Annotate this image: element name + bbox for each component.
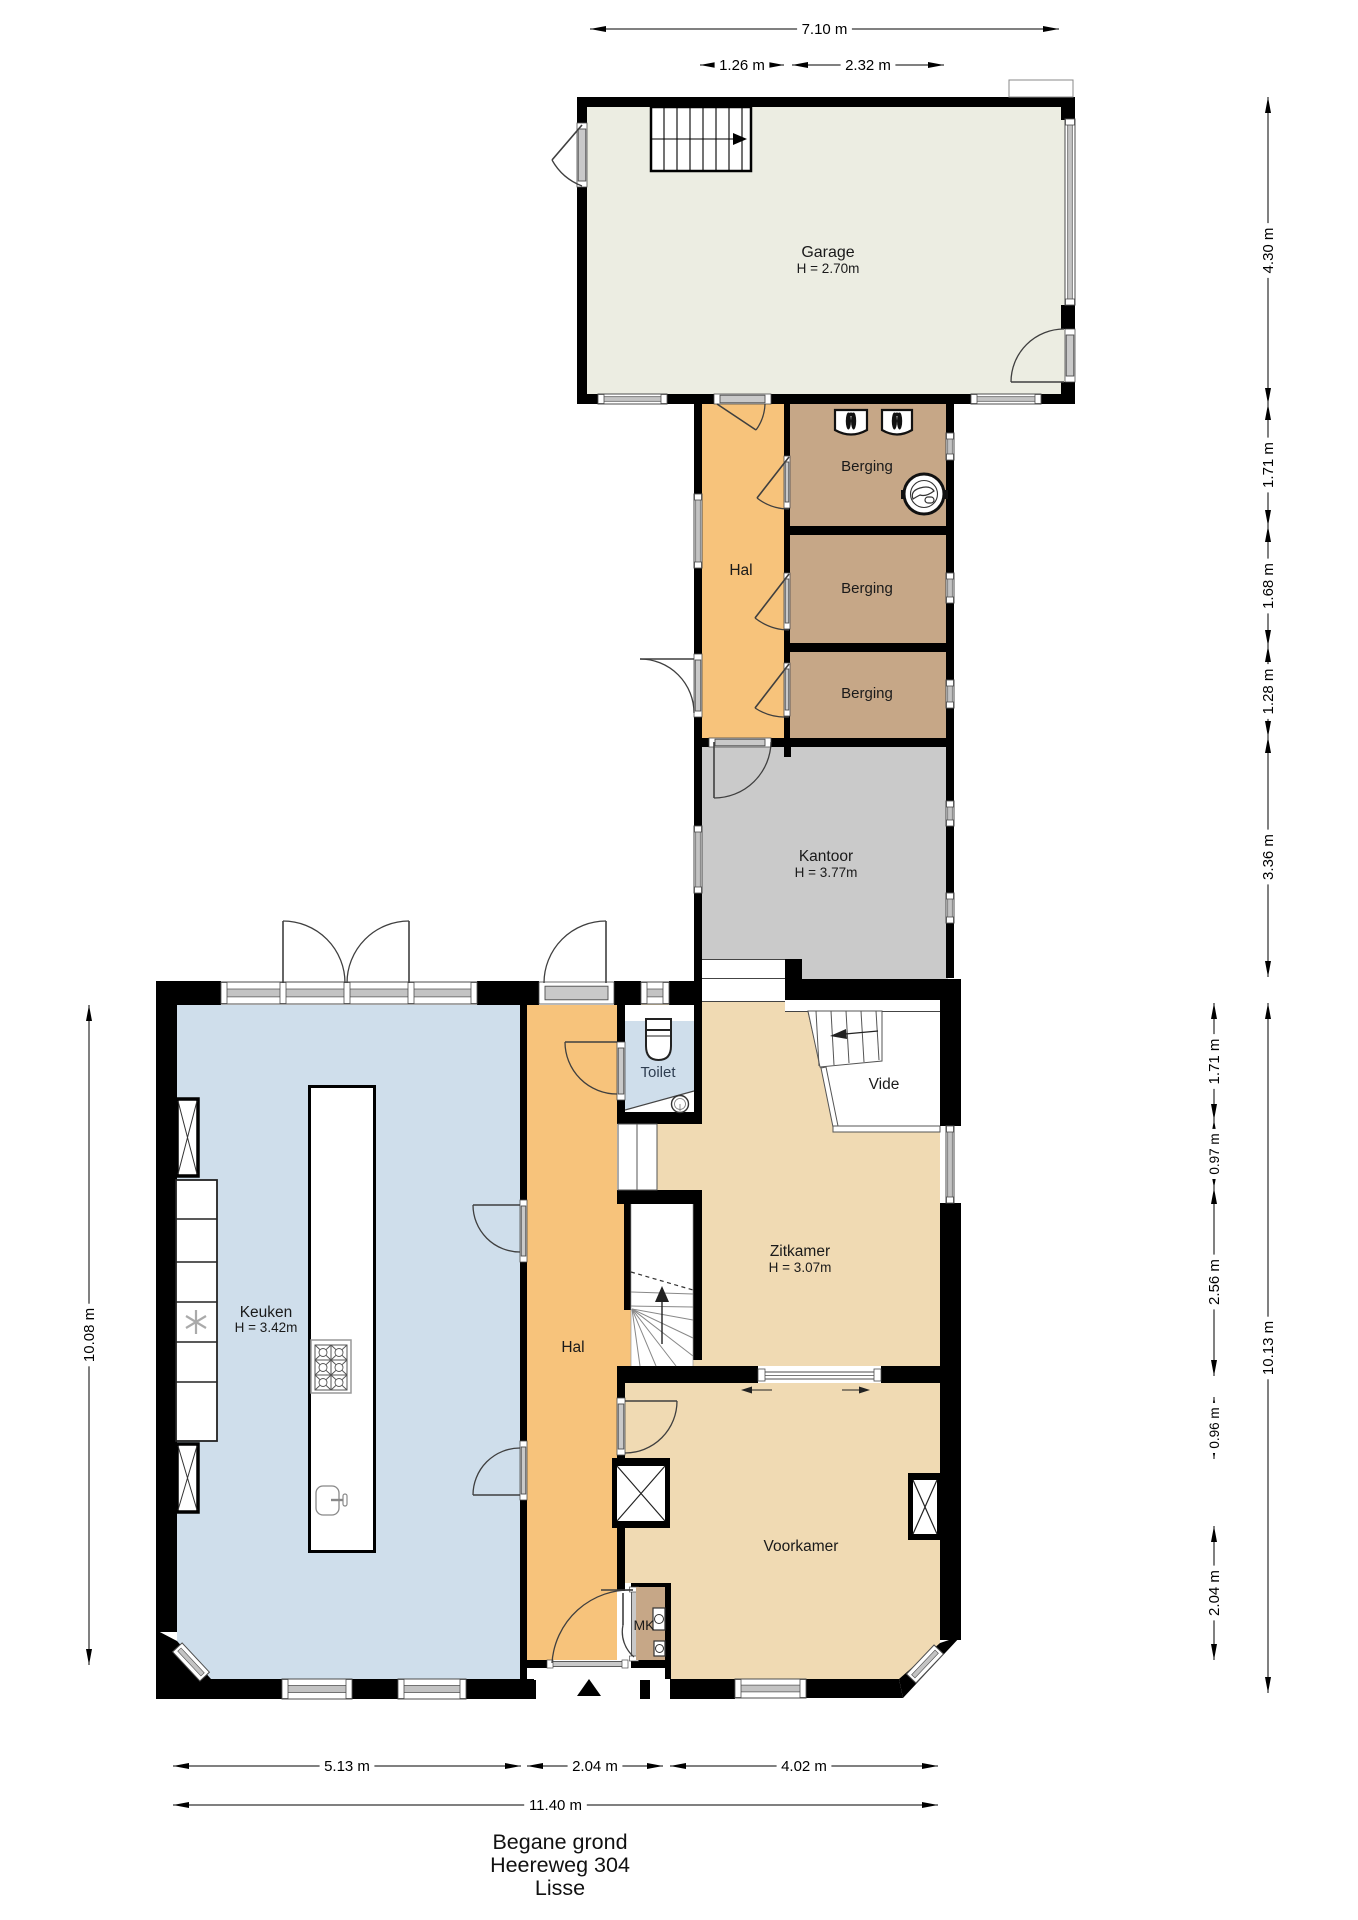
svg-text:2.32 m: 2.32 m bbox=[845, 57, 891, 74]
svg-text:1.71 m: 1.71 m bbox=[1206, 1039, 1223, 1085]
svg-text:4.02 m: 4.02 m bbox=[781, 1758, 827, 1775]
svg-text:H = 3.77m: H = 3.77m bbox=[795, 865, 858, 880]
svg-text:0.96 m: 0.96 m bbox=[1207, 1407, 1222, 1448]
svg-text:1.28 m: 1.28 m bbox=[1260, 669, 1277, 715]
svg-text:Keuken: Keuken bbox=[240, 1304, 293, 1321]
svg-text:2.04 m: 2.04 m bbox=[1206, 1570, 1223, 1616]
svg-text:Begane grond: Begane grond bbox=[492, 1830, 627, 1854]
svg-text:MK: MK bbox=[634, 1617, 656, 1633]
svg-text:H = 3.07m: H = 3.07m bbox=[769, 1260, 832, 1275]
svg-text:Berging: Berging bbox=[841, 580, 893, 597]
svg-text:1.68 m: 1.68 m bbox=[1260, 563, 1277, 609]
svg-text:Zitkamer: Zitkamer bbox=[770, 1243, 830, 1260]
svg-text:Toilet: Toilet bbox=[640, 1064, 676, 1081]
svg-text:1.26 m: 1.26 m bbox=[719, 57, 765, 74]
svg-text:H = 2.70m: H = 2.70m bbox=[797, 261, 860, 276]
svg-text:Hal: Hal bbox=[729, 562, 752, 579]
svg-text:Heereweg 304: Heereweg 304 bbox=[490, 1853, 630, 1877]
svg-text:2.04 m: 2.04 m bbox=[572, 1758, 618, 1775]
svg-text:10.08 m: 10.08 m bbox=[81, 1308, 98, 1362]
svg-text:Berging: Berging bbox=[841, 458, 893, 475]
svg-text:Garage: Garage bbox=[801, 244, 854, 261]
svg-text:H = 3.42m: H = 3.42m bbox=[235, 1320, 298, 1335]
svg-text:5.13 m: 5.13 m bbox=[324, 1758, 370, 1775]
svg-text:4.30 m: 4.30 m bbox=[1260, 228, 1277, 274]
svg-text:0.97 m: 0.97 m bbox=[1207, 1133, 1222, 1174]
svg-text:Vide: Vide bbox=[869, 1076, 900, 1093]
svg-text:2.56 m: 2.56 m bbox=[1206, 1259, 1223, 1305]
svg-text:Berging: Berging bbox=[841, 685, 893, 702]
svg-text:10.13 m: 10.13 m bbox=[1260, 1321, 1277, 1375]
svg-text:Hal: Hal bbox=[561, 1339, 584, 1356]
svg-text:Voorkamer: Voorkamer bbox=[764, 1538, 839, 1555]
svg-text:1.71 m: 1.71 m bbox=[1260, 442, 1277, 488]
svg-text:11.40 m: 11.40 m bbox=[529, 1797, 582, 1814]
svg-text:7.10 m: 7.10 m bbox=[802, 21, 848, 38]
svg-text:Kantoor: Kantoor bbox=[799, 848, 853, 865]
svg-text:3.36 m: 3.36 m bbox=[1260, 834, 1277, 880]
svg-text:Lisse: Lisse bbox=[535, 1876, 585, 1900]
